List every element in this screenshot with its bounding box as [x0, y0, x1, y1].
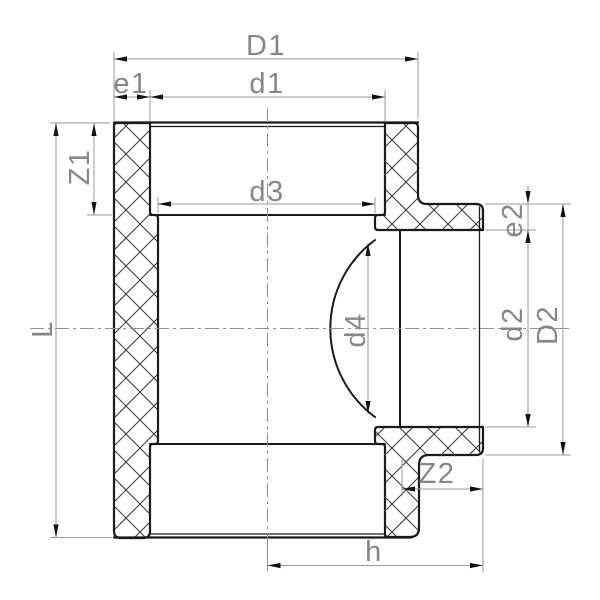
- dim-label-d3: d3: [249, 176, 284, 208]
- arrow-L-top: [53, 123, 58, 136]
- dim-label-e1: e1: [113, 68, 148, 100]
- arrow-Z1-bottom: [91, 202, 96, 215]
- dim-label-Z1: Z1: [64, 149, 96, 186]
- arrow-d1-left: [150, 94, 163, 99]
- dim-label-D1: D1: [246, 30, 286, 62]
- arrow-d3-right: [362, 201, 375, 206]
- arrow-h-right: [470, 563, 483, 568]
- arrow-d3-left: [158, 201, 171, 206]
- tee-fitting-section-drawing: D1 d1 e1 d3 Z2 h Z1 L d4 e2 d2 D2: [0, 0, 600, 600]
- arrow-Z2-right: [470, 486, 483, 491]
- left-wall-section: [114, 123, 158, 538]
- centerlines: [30, 108, 572, 571]
- arrow-d2-bottom: [525, 414, 530, 427]
- dim-label-d4: d4: [340, 312, 372, 347]
- dim-label-d1: d1: [249, 68, 284, 100]
- dim-label-D2: D2: [532, 305, 564, 345]
- arrow-D2-top: [560, 204, 565, 217]
- arrow-D1-right: [405, 56, 418, 61]
- top-right-wall-section: [375, 123, 483, 230]
- drawing-canvas: D1 d1 e1 d3 Z2 h Z1 L d4 e2 d2 D2: [0, 0, 600, 600]
- arrow-d1-right: [372, 94, 385, 99]
- dim-label-Z2: Z2: [419, 458, 456, 490]
- arrow-h-left: [268, 563, 281, 568]
- arrow-D2-bottom: [560, 442, 565, 455]
- arrow-Z1-top: [91, 123, 96, 136]
- arrow-e2-top: [525, 191, 530, 204]
- arrow-L-bottom: [53, 525, 58, 538]
- dim-label-L: L: [27, 320, 59, 338]
- dim-label-d2: d2: [497, 306, 529, 341]
- dim-label-h: h: [365, 536, 383, 568]
- arrow-D1-left: [114, 56, 127, 61]
- dim-label-e2: e2: [497, 202, 529, 237]
